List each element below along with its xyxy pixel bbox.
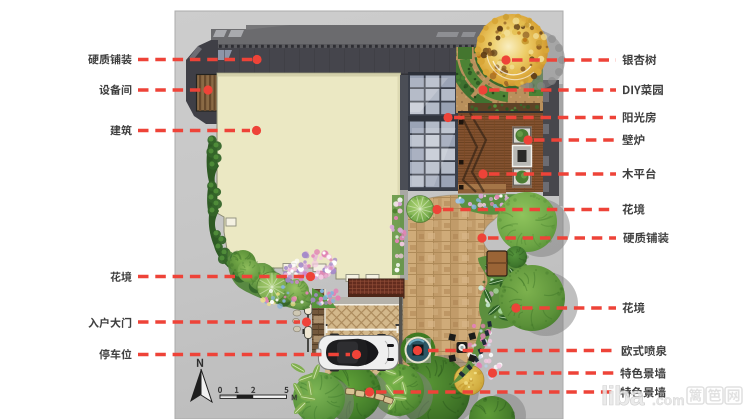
svg-text:liba: liba (601, 381, 645, 411)
svg-text:.com: .com (652, 392, 685, 408)
